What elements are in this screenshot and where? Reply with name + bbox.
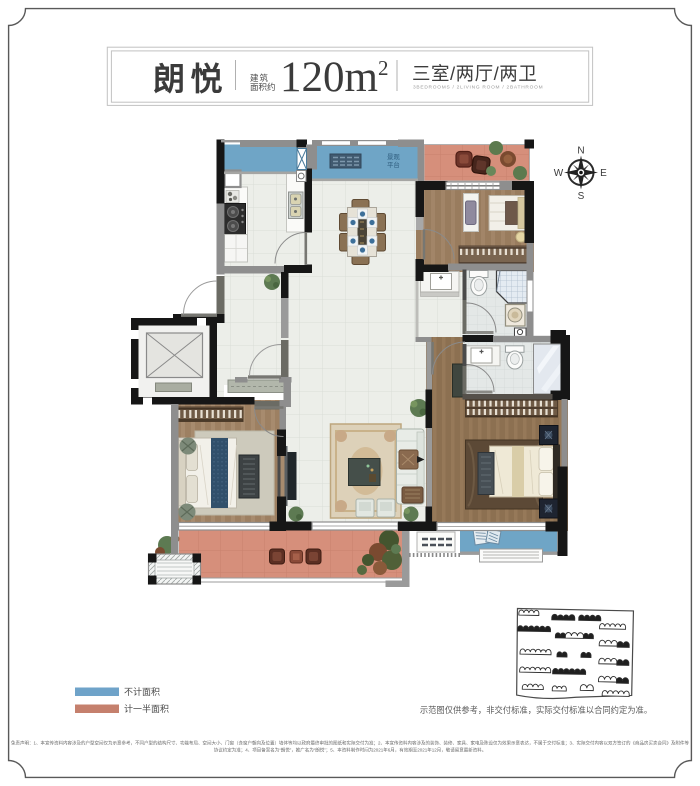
- svg-text:朗悦: 朗悦: [153, 61, 228, 97]
- svg-text:E: E: [600, 168, 607, 179]
- svg-text:计一半面积: 计一半面积: [124, 703, 169, 714]
- svg-text:协议约定为准；4、项目备案名为“朗悦”，推广名为“朗悦”；5: 协议约定为准；4、项目备案名为“朗悦”，推广名为“朗悦”；5、本资料制作时间为2…: [214, 747, 487, 754]
- svg-text:景观: 景观: [387, 153, 400, 161]
- svg-text:示范图仅供参考，非交付标准，实际交付标准以合同约定为准。: 示范图仅供参考，非交付标准，实际交付标准以合同约定为准。: [420, 705, 652, 715]
- svg-text:N: N: [577, 146, 584, 157]
- svg-text:三室/两厅/两卫: 三室/两厅/两卫: [412, 63, 537, 84]
- svg-text:平台: 平台: [387, 160, 400, 169]
- svg-text:不计面积: 不计面积: [124, 686, 160, 697]
- svg-text:3BEDROOMS / 2LIVING ROOM / 2BA: 3BEDROOMS / 2LIVING ROOM / 2BATHROOM: [413, 85, 543, 91]
- svg-text:免责声明：1、本宣传资料内容涉及的户型空间仅为示意参考，不同: 免责声明：1、本宣传资料内容涉及的户型空间仅为示意参考，不同户型的结构尺寸、功能…: [11, 740, 689, 747]
- svg-text:S: S: [578, 191, 585, 202]
- svg-text:面积约: 面积约: [250, 82, 276, 92]
- svg-text:120m2: 120m2: [280, 54, 388, 101]
- svg-text:W: W: [554, 168, 564, 179]
